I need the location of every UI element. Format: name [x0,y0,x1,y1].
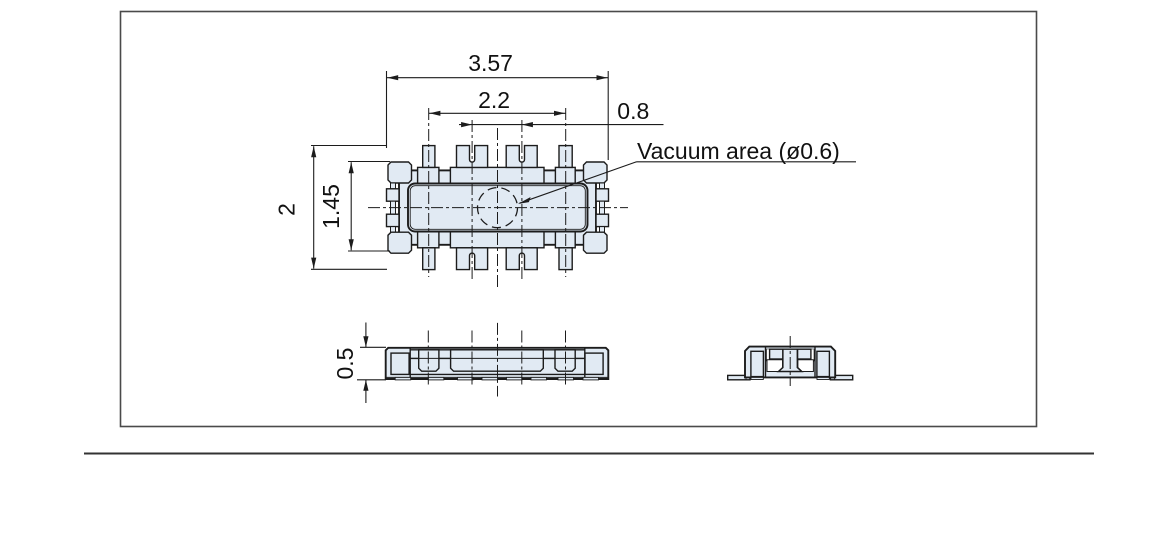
svg-text:Vacuum area (ø0.6): Vacuum area (ø0.6) [637,138,840,164]
svg-text:0.5: 0.5 [332,348,358,380]
svg-text:0.8: 0.8 [617,98,649,124]
svg-text:2: 2 [274,203,300,216]
svg-text:2.2: 2.2 [478,87,510,113]
svg-text:3.57: 3.57 [468,50,513,76]
svg-text:1.45: 1.45 [318,184,344,229]
